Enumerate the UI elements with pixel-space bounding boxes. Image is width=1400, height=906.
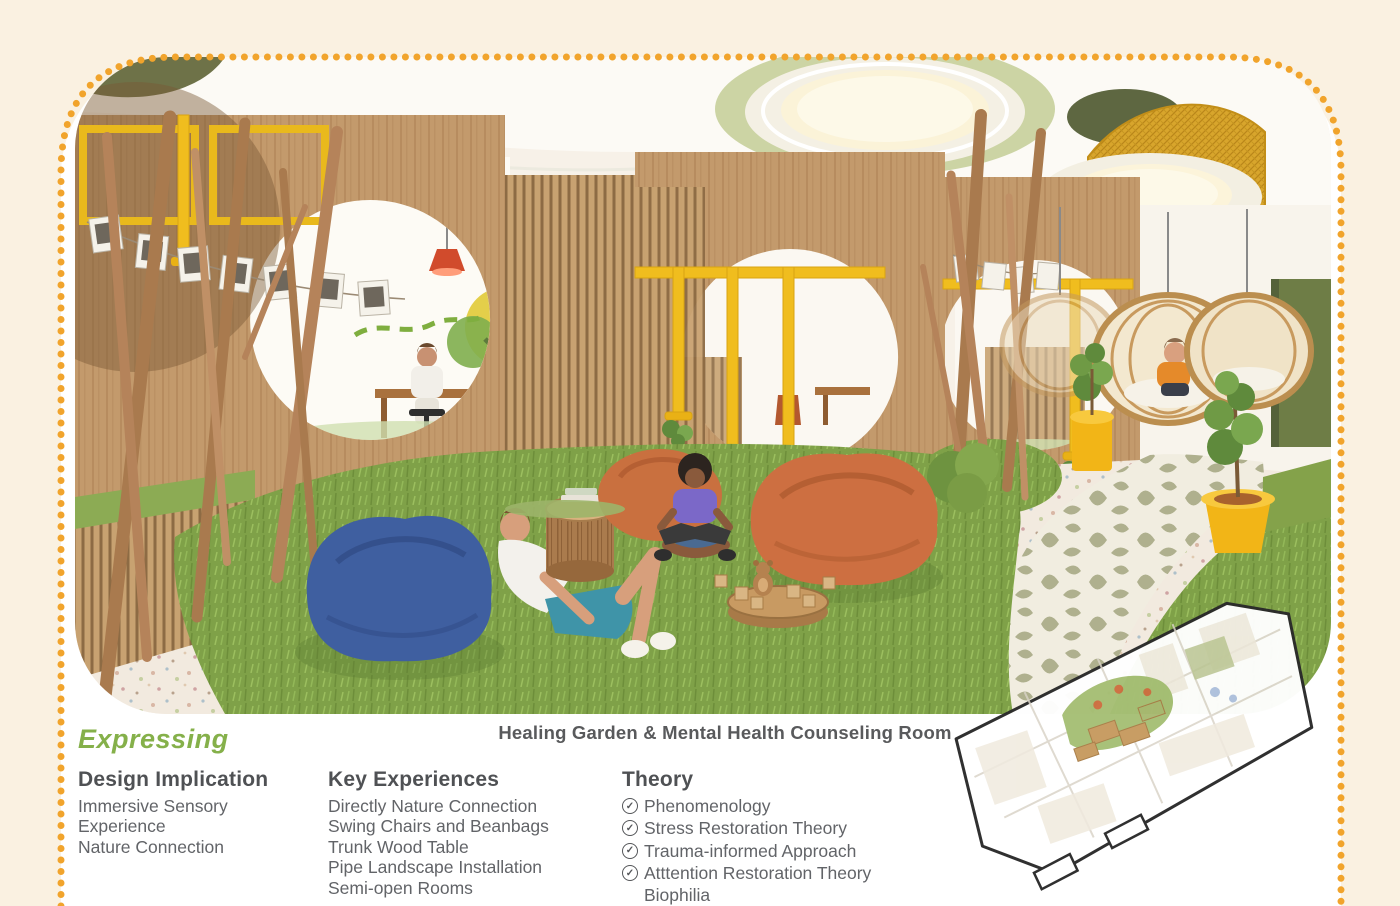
theory-item: ✓ Stress Restoration Theory xyxy=(622,818,927,839)
theory-item-label: Trauma-informed Approach xyxy=(644,841,856,862)
theory-item-label: Atttention Restoration Theory xyxy=(644,863,871,884)
teddy-bear xyxy=(753,560,773,596)
design-implication-column: Design Implication Immersive Sensory Exp… xyxy=(78,768,293,857)
orange-beanbag-large xyxy=(747,453,943,603)
theory-item-label: Biophilia xyxy=(644,885,710,906)
blue-beanbag xyxy=(295,516,505,680)
check-circle-icon: ✓ xyxy=(622,798,638,814)
theory-item: Biophilia xyxy=(622,885,927,906)
design-implication-item: Immersive Sensory Experience xyxy=(78,796,293,837)
check-circle-icon: ✓ xyxy=(622,820,638,836)
theory-item: ✓ Trauma-informed Approach xyxy=(622,841,927,862)
floor-plan-thumbnail xyxy=(928,600,1350,892)
key-experiences-heading: Key Experiences xyxy=(328,768,618,792)
key-experiences-item: Trunk Wood Table xyxy=(328,837,618,857)
key-experiences-item: Semi-open Rooms xyxy=(328,878,618,898)
theory-item-label: Phenomenology xyxy=(644,796,770,817)
theory-heading: Theory xyxy=(622,768,927,792)
check-circle-icon: ✓ xyxy=(622,843,638,859)
design-implication-heading: Design Implication xyxy=(78,768,293,792)
check-circle-icon: ✓ xyxy=(622,865,638,881)
key-experiences-item: Directly Nature Connection xyxy=(328,796,618,816)
check-circle-spacer xyxy=(622,887,638,903)
section-label: Expressing xyxy=(78,724,229,755)
theory-item-label: Stress Restoration Theory xyxy=(644,818,847,839)
design-implication-item: Nature Connection xyxy=(78,837,293,857)
grass-patch-room xyxy=(505,500,625,518)
key-experiences-column: Key Experiences Directly Nature Connecti… xyxy=(328,768,618,898)
theory-item: ✓ Atttention Restoration Theory xyxy=(622,863,927,884)
render-caption: Healing Garden & Mental Health Counselin… xyxy=(355,722,1095,744)
presentation-board: Healing Garden & Mental Health Counselin… xyxy=(0,0,1400,906)
theory-item: ✓ Phenomenology xyxy=(622,796,927,817)
key-experiences-item: Pipe Landscape Installation xyxy=(328,857,618,877)
key-experiences-item: Swing Chairs and Beanbags xyxy=(328,816,618,836)
theory-column: Theory ✓ Phenomenology ✓ Stress Restorat… xyxy=(622,768,927,906)
